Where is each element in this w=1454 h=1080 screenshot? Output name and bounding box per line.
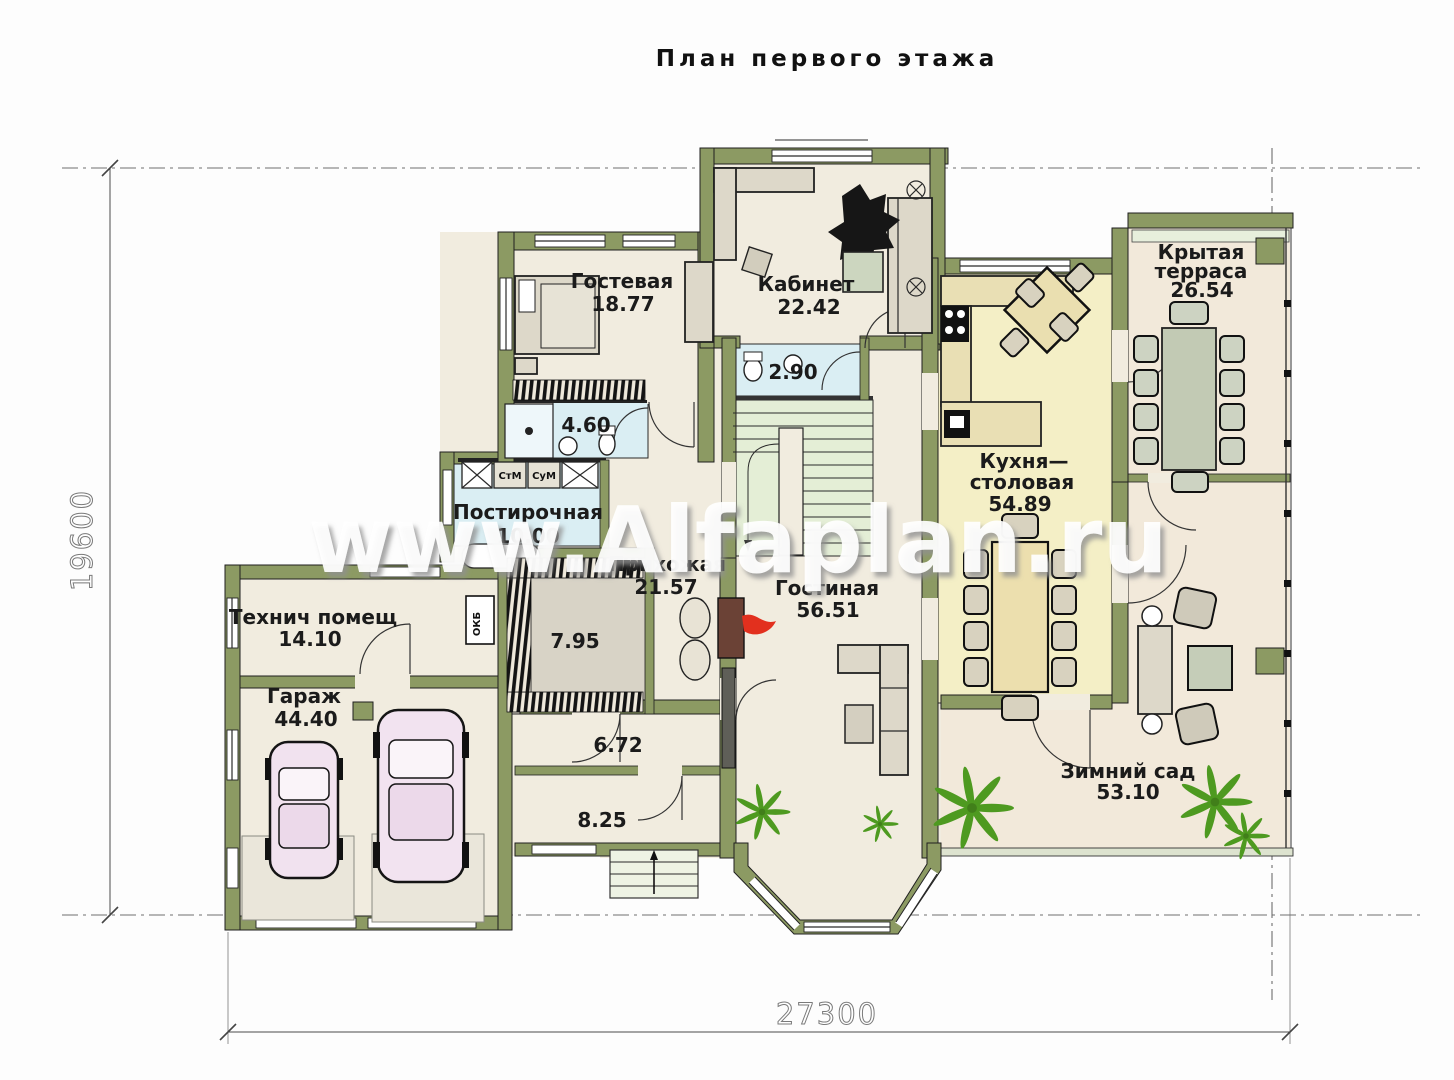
dim-height: 19600 <box>65 489 99 591</box>
label-lobby-area: 6.72 <box>593 733 642 757</box>
car-large <box>373 710 469 882</box>
label-washer: СтМ <box>498 471 521 482</box>
label-dressing-area: 7.95 <box>550 629 599 653</box>
floor-plan-page: Гостевая 18.77 Кабинет 22.42 2.90 4.60 П… <box>0 0 1454 1080</box>
label-living-area: 56.51 <box>796 598 859 622</box>
label-electrical-box: ОКБ <box>472 612 483 636</box>
floor-plan: Гостевая 18.77 Кабинет 22.42 2.90 4.60 П… <box>0 0 1454 1080</box>
tv-panel <box>722 668 735 768</box>
fireplace <box>718 598 744 658</box>
label-tech-area: 14.10 <box>278 627 341 651</box>
watermark: www.Alfaplan.ru <box>308 487 1168 594</box>
dim-width: 27300 <box>776 997 878 1031</box>
car-small <box>265 742 343 878</box>
label-garden-area: 53.10 <box>1096 780 1159 804</box>
label-terrace-area: 26.54 <box>1170 278 1233 302</box>
label-bath-area: 4.60 <box>561 413 610 437</box>
label-vestibule-area: 8.25 <box>577 808 626 832</box>
page-title: План первого этажа <box>656 46 999 72</box>
label-dryer: СуМ <box>532 471 556 482</box>
label-guest-area: 18.77 <box>591 292 654 316</box>
label-tech-name: Технич помещ <box>229 605 397 629</box>
label-garage-area: 44.40 <box>274 707 337 731</box>
wardrobe-hatch <box>513 380 645 400</box>
label-wc-area: 2.90 <box>768 360 817 384</box>
label-guest-name: Гостевая <box>571 269 674 293</box>
label-office-area: 22.42 <box>777 295 840 319</box>
label-office-name: Кабинет <box>758 272 855 296</box>
label-garage-name: Гараж <box>267 684 341 708</box>
